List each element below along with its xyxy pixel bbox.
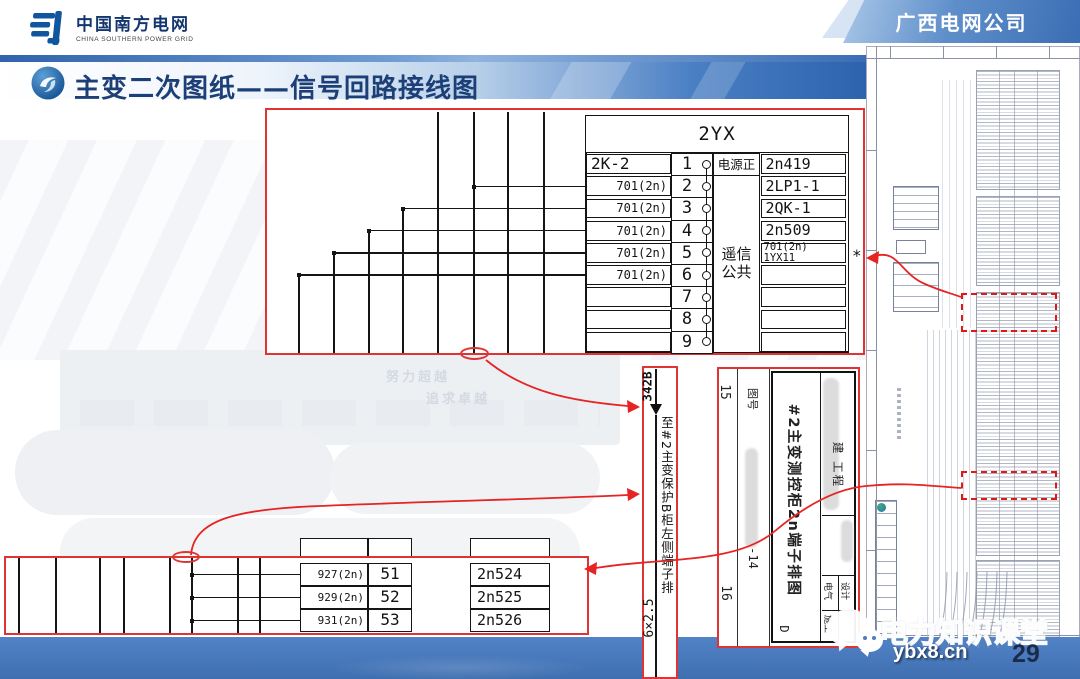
wire-hline xyxy=(402,208,586,210)
wire-highlight-ellipse-bottom xyxy=(172,551,200,563)
wire-highlight-ellipse-main xyxy=(460,347,489,360)
mini-table-divider xyxy=(1037,70,1038,638)
sheet-top-rule xyxy=(866,58,1080,59)
telemetry-common-label-2: 公共 xyxy=(721,265,751,280)
highlight-region-lower xyxy=(961,471,1057,500)
destination-box: 701(2n) 1YX11 xyxy=(761,243,846,263)
mini-terminal-table-segment xyxy=(976,196,1060,286)
mini-table-divider xyxy=(999,70,1000,638)
wire-label: 2K-2 xyxy=(591,156,630,172)
tb-cell-a: 电气 xyxy=(823,576,835,606)
bt-terminal-number: 53 xyxy=(380,612,399,628)
monitor-row xyxy=(80,400,600,426)
brand-url: ybx8.cn xyxy=(893,641,967,664)
title-band-streak-2 xyxy=(683,62,752,99)
console-desk-1 xyxy=(15,430,335,515)
wire-hline xyxy=(298,274,586,276)
tb-cell-c: 设计 xyxy=(840,576,852,606)
wechat-bubble-eye xyxy=(863,636,867,640)
wire-label: 701(2n) xyxy=(616,225,667,237)
console-desk-2 xyxy=(330,442,600,514)
bt-wire-label: 927(2n) xyxy=(318,569,364,580)
wire-label-box: 701(2n) xyxy=(586,176,671,196)
sheet-tick xyxy=(1049,46,1050,58)
wire-label: 701(2n) xyxy=(616,180,667,192)
title-icon xyxy=(30,65,66,101)
wire-junction xyxy=(472,185,476,189)
terminal-circle xyxy=(702,204,711,213)
bt-terminal-number-box: 51 xyxy=(368,563,412,586)
tb-redaction-blob xyxy=(745,448,758,548)
wire-label-box: 701(2n) xyxy=(586,199,671,219)
cable-spec: 6×2.5 xyxy=(642,596,656,640)
tb-code: -14 xyxy=(746,542,760,574)
bt-terminal-number-box: 52 xyxy=(368,586,412,609)
tb-vline xyxy=(769,369,770,646)
mini-logo-dot xyxy=(877,503,886,512)
cable-destination: 至#2主变保护B柜左侧端子排 xyxy=(660,416,676,648)
wire-hline xyxy=(473,186,586,188)
bt-terminal-number-box: 53 xyxy=(368,609,412,632)
wire-label-box xyxy=(586,310,671,330)
bt-destination-label: 2n526 xyxy=(477,613,522,628)
bt-wire-label: 931(2n) xyxy=(318,615,364,626)
tb-divider xyxy=(820,373,821,641)
destination-box: 2LP1-1 xyxy=(761,176,846,196)
wire-label: 701(2n) xyxy=(616,202,667,214)
mini-wire-fan xyxy=(942,80,976,328)
logo-text-en: CHINA SOUTHERN POWER GRID xyxy=(76,36,194,43)
bt-wire-label: 929(2n) xyxy=(318,592,364,603)
telemetry-common-label-1: 遥信 xyxy=(721,247,751,262)
wire-label: 701(2n) xyxy=(616,269,667,281)
terminal-strip-name: 2YX xyxy=(698,125,735,144)
tb-stamp: 建 工程 xyxy=(831,420,845,510)
bg-watermark-line2: 追求卓越 xyxy=(426,388,490,407)
destination-box xyxy=(761,287,846,307)
power-positive-label: 电源正 xyxy=(718,159,756,172)
bottom-partial-box xyxy=(300,538,368,557)
bt-wire-junction xyxy=(190,596,194,600)
corp-badge: 广西电网公司 xyxy=(843,0,1080,43)
sheet-tick xyxy=(866,250,876,251)
terminal-circle xyxy=(702,160,711,169)
destination-box: 2n509 xyxy=(761,221,846,241)
logo-text-cn: 中国南方电网 xyxy=(76,10,194,35)
bt-wire-vline xyxy=(55,558,57,633)
table-right-edge xyxy=(848,153,850,353)
mini-table-divider xyxy=(1014,70,1015,638)
title-band-streak-1 xyxy=(543,62,638,99)
tb-redaction-blob xyxy=(841,520,853,562)
tb-no-label: 图号 xyxy=(746,383,760,415)
bt-wire-label-box: 927(2n) xyxy=(300,563,368,586)
power-positive-cell: 电源正 xyxy=(713,153,760,177)
sheet-tick xyxy=(866,350,876,351)
bt-wire-hline xyxy=(191,597,300,599)
bt-terminal-number: 51 xyxy=(380,566,399,582)
bt-destination-label: 2n525 xyxy=(477,590,522,605)
wechat-bubble-eye xyxy=(872,636,876,640)
cable-line-upper xyxy=(655,369,657,405)
wire-label-box xyxy=(586,332,671,352)
destination-box: 2QK-1 xyxy=(761,199,846,219)
tb-vline xyxy=(737,369,738,646)
telemetry-common-cell: 遥信 公共 xyxy=(713,175,760,353)
wire-label-box: 701(2n) xyxy=(586,221,671,241)
wire-hline xyxy=(368,230,586,232)
corp-badge-label: 广西电网公司 xyxy=(896,7,1028,36)
slide-canvas: 努力超越 追求卓越 中国南方电网 CHINA SOUTHERN POWER GR… xyxy=(0,0,1080,679)
bottom-partial-box xyxy=(368,538,412,557)
wire-label: 701(2n) xyxy=(616,247,667,259)
destination-label: 701(2n) 1YX11 xyxy=(764,242,845,263)
wire-junction xyxy=(332,251,336,255)
bt-wire-vline xyxy=(18,558,20,633)
header-divider xyxy=(0,55,866,62)
terminal-circle xyxy=(702,293,711,302)
mini-notes xyxy=(897,388,901,440)
bt-wire-junction xyxy=(190,573,194,577)
bottom-partial-box xyxy=(470,538,550,557)
csg-logo xyxy=(26,7,70,49)
bt-destination-box: 2n524 xyxy=(470,563,550,586)
terminal-circle xyxy=(702,182,711,191)
sheet-tick xyxy=(866,150,876,151)
bg-watermark-line1: 努力超越 xyxy=(386,366,450,385)
wire-hline xyxy=(333,252,586,254)
mini-relay-symbol xyxy=(893,186,939,230)
tb-left-bottom: 16 xyxy=(719,578,733,608)
mini-relay-symbol xyxy=(896,240,926,254)
bt-terminal-number: 52 xyxy=(380,589,399,605)
cable-tag: 342B xyxy=(641,368,654,406)
wire-vline xyxy=(298,275,300,353)
destination-box xyxy=(761,332,846,352)
bt-wire-vline xyxy=(237,558,239,633)
sheet-tick xyxy=(943,46,944,58)
destination-label: 2LP1-1 xyxy=(766,179,820,194)
wire-vline xyxy=(507,112,509,353)
bt-destination-box: 2n525 xyxy=(470,586,550,609)
bt-wire-hline xyxy=(191,574,300,576)
tb-cell-d: D xyxy=(777,614,791,644)
page-number: 29 xyxy=(1012,640,1040,669)
destination-label: 2n419 xyxy=(766,157,811,172)
wire-label-box: 2K-2 xyxy=(586,154,671,174)
sheet-tick xyxy=(890,46,891,58)
mini-relay-symbol xyxy=(893,262,939,312)
destination-box: 2n419 xyxy=(761,154,846,174)
sheet-tick xyxy=(866,450,876,451)
wire-vline xyxy=(333,253,335,353)
wire-label-box xyxy=(586,287,671,307)
bt-destination-label: 2n524 xyxy=(477,567,522,582)
tb-left-top: 15 xyxy=(718,377,732,407)
destination-box xyxy=(761,310,846,330)
bt-wire-vline xyxy=(99,558,101,633)
terminal-circle xyxy=(702,315,711,324)
swirl-icon xyxy=(30,65,66,101)
wire-vline xyxy=(473,112,475,353)
wire-junction xyxy=(401,207,405,211)
terminal-circle xyxy=(702,271,711,280)
footer-highlight xyxy=(330,655,590,679)
logo-text-group: 中国南方电网 CHINA SOUTHERN POWER GRID xyxy=(76,10,194,43)
wire-junction xyxy=(367,229,371,233)
sheet-tick xyxy=(996,46,997,58)
bt-wire-label-box: 929(2n) xyxy=(300,586,368,609)
cable-arrow-down xyxy=(650,404,662,415)
wire-junction xyxy=(297,273,301,277)
wire-label-box: 701(2n) xyxy=(586,265,671,285)
wire-vline xyxy=(368,231,370,353)
wire-vline xyxy=(543,112,545,353)
csg-logo-icon xyxy=(26,7,70,49)
tb-divider xyxy=(822,515,855,516)
destination-label: 2n509 xyxy=(766,223,811,238)
slide-title: 主变二次图纸——信号回路接线图 xyxy=(74,68,479,105)
star-marker: * xyxy=(852,246,862,265)
bt-wire-junction xyxy=(190,619,194,623)
wire-label-box: 701(2n) xyxy=(586,243,671,263)
tb-drawing-title: #2主变测控柜2n端子排图 xyxy=(787,375,803,625)
bt-wire-label-box: 931(2n) xyxy=(300,609,368,632)
bt-wire-vline xyxy=(169,558,171,633)
terminal-strip-header: 2YX xyxy=(585,115,849,153)
bt-destination-box: 2n526 xyxy=(470,609,550,632)
bt-wire-vline xyxy=(259,558,261,633)
bt-wire-vline xyxy=(123,558,125,633)
mini-terminal-table-segment xyxy=(976,70,1060,190)
bt-wire-hline xyxy=(191,620,300,622)
destination-box xyxy=(761,265,846,285)
wire-vline xyxy=(437,112,439,353)
destination-label: 2QK-1 xyxy=(766,201,811,216)
highlight-region-upper xyxy=(961,293,1057,332)
